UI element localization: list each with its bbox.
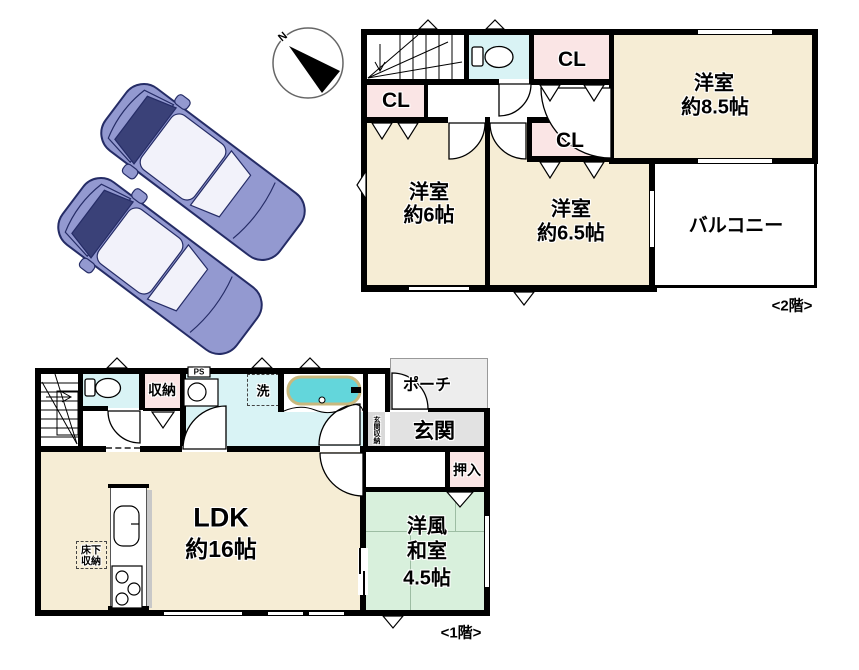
wall-segment (527, 117, 614, 123)
kitchen-counter (110, 486, 147, 610)
wall-segment (80, 406, 108, 411)
room-label-balcony: バルコニー (689, 211, 784, 238)
wall-segment (360, 446, 366, 548)
car-icon (43, 67, 319, 370)
window-vent-marker (486, 20, 504, 29)
wall-segment (814, 162, 817, 288)
window-marker (697, 29, 773, 35)
room-label-japanese-room-size: 4.5帖 (403, 562, 451, 591)
room-label-laundry: 洗 (256, 381, 269, 400)
wall-segment (180, 368, 186, 446)
wall-segment (35, 368, 390, 374)
wall-segment (35, 368, 41, 616)
floor1-label: <1階> (441, 622, 482, 643)
room-label-entrance-storage: 玄関収納 (371, 416, 381, 444)
window-vent-marker (419, 20, 437, 29)
wall-segment (529, 79, 614, 85)
floorplan-canvas: N CL CL CL 洋室 約8.5帖 洋室 約6帖 洋室 約6.5帖 バルコニ… (0, 0, 859, 670)
room-label-ldk-name: LDK (193, 503, 249, 534)
threshold-marker (106, 447, 140, 449)
window-marker (267, 611, 304, 616)
room-label-bedroom-65-size: 約6.5帖 (537, 217, 605, 246)
sliding-door-leaf (359, 548, 361, 574)
window-vent-marker (300, 358, 320, 368)
room-label-closet-left: CL (382, 89, 410, 113)
wall-segment (361, 29, 367, 292)
wall-segment (366, 487, 490, 492)
wall-segment (445, 450, 450, 492)
wall-segment (35, 610, 490, 616)
wall-segment (140, 446, 182, 452)
room-label-bedroom-6-size: 約6帖 (403, 199, 454, 228)
wall-segment (363, 368, 368, 412)
room-label-porch: ポーチ (403, 371, 451, 395)
wall-segment (812, 29, 818, 164)
wall-segment (360, 595, 366, 616)
wall-segment (227, 446, 320, 452)
window-marker (697, 158, 773, 164)
wall-segment (609, 29, 614, 164)
room-label-entrance: 玄関 (413, 415, 455, 445)
window-marker (163, 611, 243, 616)
f1-toilet-room (80, 374, 140, 408)
f1-washroom-lower (278, 412, 363, 446)
wall-segment (654, 285, 817, 288)
window-vent-marker (252, 358, 272, 368)
wall-segment (364, 446, 490, 452)
wall-segment (35, 446, 106, 452)
room-label-closet-top: CL (558, 48, 586, 72)
wall-segment (361, 117, 448, 123)
door-arc (108, 411, 140, 443)
window-vent-marker (107, 358, 127, 368)
wall-segment (361, 285, 657, 292)
window-marker (484, 515, 490, 588)
wall-segment (363, 412, 368, 450)
room-label-ldk-size: 約16帖 (185, 530, 257, 564)
wall-segment (485, 117, 490, 285)
f2-toilet-room (469, 35, 529, 79)
window-marker (308, 611, 345, 616)
room-label-oshiire: 押入 (453, 460, 481, 480)
sliding-door-leaf (363, 571, 365, 595)
f1-stairs-area (41, 374, 78, 446)
wall-segment (361, 79, 499, 85)
wall-segment (139, 374, 145, 410)
wall-segment (428, 408, 488, 412)
tatami-line (455, 492, 456, 531)
closet-door-marker (383, 616, 403, 628)
compass-north-label: N (276, 30, 290, 44)
wall-segment (527, 123, 532, 158)
f1-bathroom (284, 374, 363, 410)
kitchen-counter-shade (147, 490, 152, 608)
window-marker (649, 190, 655, 248)
kitchen-counter-cap (108, 484, 149, 488)
room-label-closet-mid: CL (556, 129, 584, 153)
closet-door-marker (152, 412, 174, 428)
closet-door-marker (514, 292, 534, 305)
f2-stairs-area (366, 35, 464, 79)
wall-segment (529, 29, 534, 85)
wall-segment (385, 368, 390, 412)
wall-segment (464, 29, 469, 85)
room-label-pipe-space: PS (194, 368, 205, 377)
room-label-storage: 収納 (148, 380, 176, 400)
room-label-japanese-room-line2: 和室 (407, 535, 447, 564)
wall-segment (424, 84, 428, 118)
window-marker (408, 286, 470, 291)
floor2-label: <2階> (772, 295, 813, 316)
wall-segment (278, 368, 284, 412)
wall-segment (527, 156, 614, 162)
wall-segment (143, 408, 182, 411)
room-label-underfloor-line2: 収納 (81, 553, 101, 568)
room-label-bedroom-85-size: 約8.5帖 (681, 91, 749, 120)
